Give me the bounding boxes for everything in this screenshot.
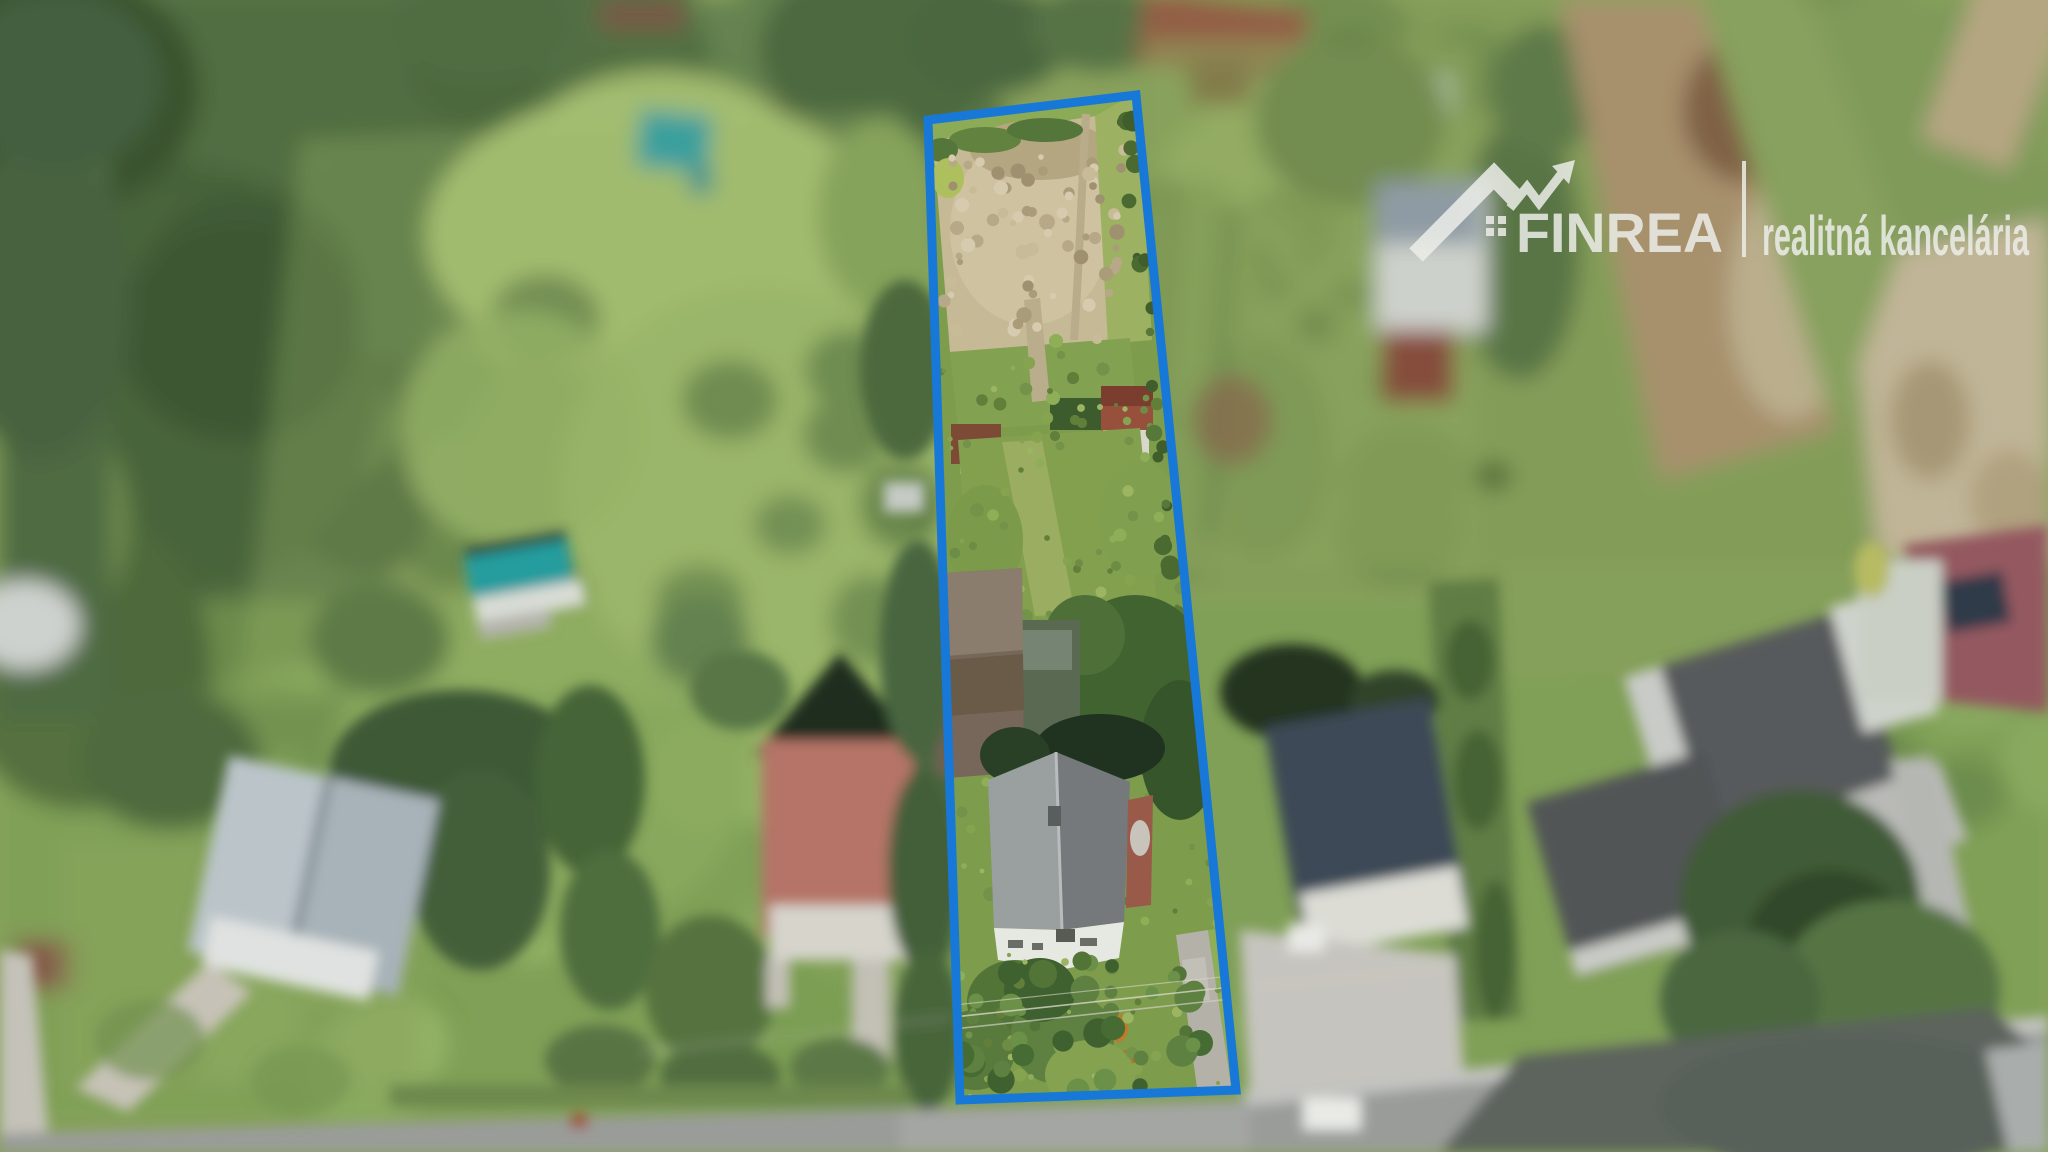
svg-text:FINREA: FINREA	[1516, 201, 1723, 264]
svg-text:realitná kancelária: realitná kancelária	[1762, 204, 2029, 267]
